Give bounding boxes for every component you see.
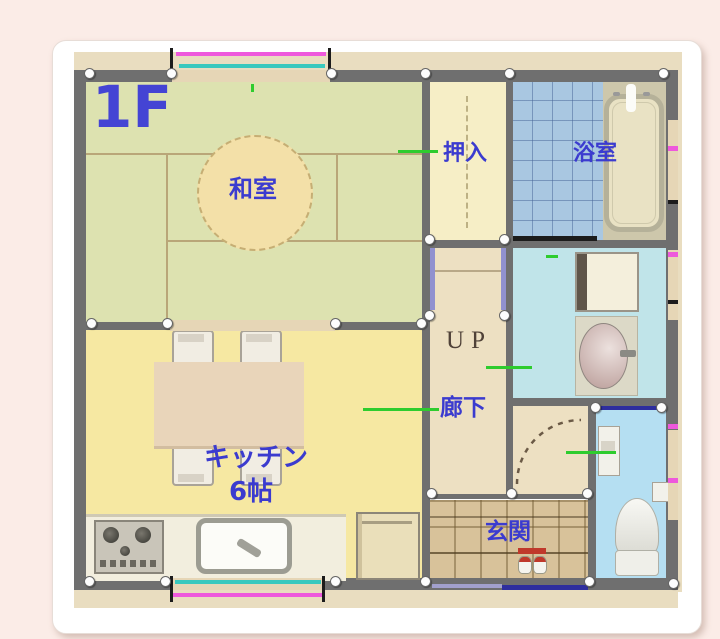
room-label-washitsu: 和室	[197, 176, 309, 202]
selection-handle	[420, 68, 431, 79]
window-top-opening	[172, 70, 330, 82]
window-right-tick	[668, 146, 678, 151]
leader-tick	[546, 255, 558, 258]
toilet-tank	[615, 550, 659, 576]
selection-handle	[84, 576, 95, 587]
selection-handle	[420, 576, 431, 587]
stove-controls	[100, 560, 156, 567]
selection-handle	[330, 318, 341, 329]
stairs-up-label: UP	[433, 327, 505, 355]
room-label-hallway: 廊下	[430, 396, 496, 421]
bath-door-line	[513, 236, 597, 241]
corridor	[430, 248, 506, 494]
wall-corridor-washroom	[506, 248, 513, 494]
fusuma-opening	[170, 320, 335, 331]
stair-step-line	[435, 270, 501, 272]
window-right-tick	[668, 424, 678, 429]
genkan-tile-line	[430, 516, 588, 518]
bath-faucet-knob	[643, 92, 650, 96]
refrigerator	[356, 512, 420, 580]
room-label-oshiire: 押入	[427, 142, 503, 166]
vanity-faucet-icon	[620, 350, 636, 357]
tatami-line	[166, 153, 168, 322]
stove	[94, 520, 164, 574]
window-bottom-magenta	[173, 593, 325, 597]
selection-handle	[86, 318, 97, 329]
stove-burner-small	[120, 546, 130, 556]
selection-handle	[584, 576, 595, 587]
selection-handle	[658, 68, 669, 79]
stair-rail-right	[501, 248, 506, 310]
window-right-jamb	[668, 200, 678, 204]
selection-handle	[668, 578, 679, 589]
stove-burner	[135, 527, 151, 543]
leader-line	[486, 366, 532, 369]
selection-handle	[426, 488, 437, 499]
floorplan-image[interactable]: 1F 和室 押入 浴室 UP 廊下 キッチン 6帖 玄関	[0, 0, 720, 639]
window-bottom-cyan	[175, 580, 321, 584]
bath-faucet-knob	[613, 92, 620, 96]
window-right-opening	[668, 250, 678, 320]
tatami-line	[336, 153, 338, 242]
shoes-icon	[518, 548, 546, 554]
toilet-door-line	[598, 406, 662, 410]
kitchen-size-label: 6帖	[196, 478, 306, 507]
window-right-opening	[668, 430, 678, 520]
shoe-icon	[518, 556, 532, 574]
leader-line	[566, 451, 616, 454]
selection-handle	[499, 310, 510, 321]
room-label-genkan: 玄関	[476, 520, 540, 545]
selection-handle	[582, 488, 593, 499]
washing-machine-panel	[577, 254, 587, 310]
selection-handle	[166, 68, 177, 79]
washing-machine	[575, 252, 639, 312]
selection-handle	[160, 576, 171, 587]
eave-band-top	[74, 52, 666, 70]
room-label-kitchen: キッチン	[196, 444, 316, 473]
stove-burner	[103, 527, 119, 543]
dining-table	[154, 362, 304, 449]
refrigerator-handle	[362, 521, 412, 524]
leader-line	[363, 408, 439, 411]
window-right-tick	[668, 478, 678, 483]
page: 1F 和室 押入 浴室 UP 廊下 キッチン 6帖 玄関	[0, 0, 720, 639]
vestibule	[513, 406, 588, 494]
leader-tick	[251, 84, 254, 92]
selection-handle	[424, 310, 435, 321]
window-right-opening	[668, 120, 678, 200]
shoe-icon	[533, 556, 547, 574]
selection-handle	[424, 234, 435, 245]
genkan-tile-line	[430, 552, 588, 554]
window-right-tick	[668, 252, 678, 257]
bath-faucet-icon	[626, 84, 636, 112]
wall-left	[74, 70, 86, 590]
tatami-line	[166, 240, 422, 242]
selection-handle	[326, 68, 337, 79]
selection-handle	[84, 68, 95, 79]
selection-handle	[506, 488, 517, 499]
floor-label: 1F	[92, 76, 192, 140]
window-right-jamb	[668, 300, 678, 304]
window-bottom-jamb	[322, 576, 325, 602]
eave-band-bottom	[74, 590, 678, 608]
wall-oshiire-bath	[506, 82, 513, 240]
selection-handle	[590, 402, 601, 413]
entrance-door	[502, 585, 588, 590]
wall-under-oshiire-bath	[430, 240, 666, 248]
window-top-magenta	[176, 52, 326, 56]
selection-handle	[504, 68, 515, 79]
selection-handle	[499, 234, 510, 245]
selection-handle	[656, 402, 667, 413]
entrance-door-track	[432, 584, 502, 588]
room-label-bathroom: 浴室	[550, 142, 640, 166]
stair-rail-left	[430, 248, 435, 310]
window-top-cyan	[179, 64, 325, 68]
selection-handle	[330, 576, 341, 587]
selection-handle	[162, 318, 173, 329]
